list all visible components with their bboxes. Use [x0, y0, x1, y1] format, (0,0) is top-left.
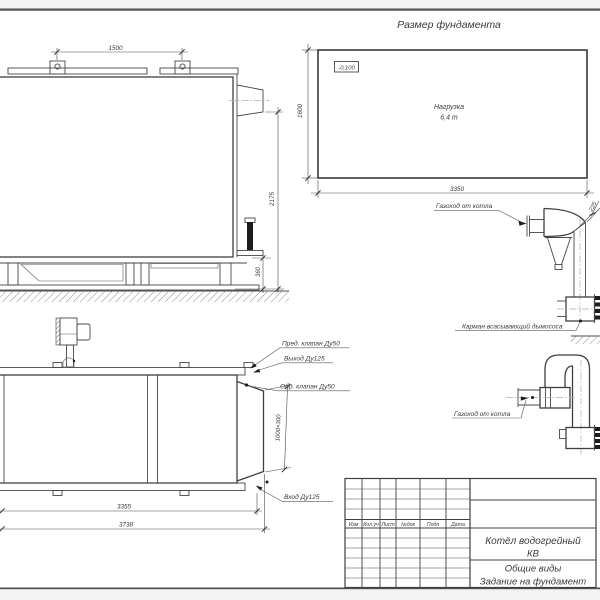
leader-arrow [253, 369, 260, 373]
foundation-plan: Размер фундамента -0,100 Нагрузка 6,4 т … [297, 19, 594, 198]
tb-col-ndok: №док [401, 522, 415, 528]
plan-length-dim: 3355 [117, 504, 132, 511]
foundation-width-dim: 3350 [450, 186, 465, 193]
tb-product-line2: КВ [527, 549, 540, 560]
tb-doc-line1: Общие виды [505, 564, 562, 575]
tb-col-izm: Изм [349, 522, 359, 528]
tb-col-data: Дата [450, 522, 465, 528]
lifting-lug-left [50, 61, 65, 74]
flue-upper-dim: 225 [588, 201, 599, 214]
flue-upper-label: Газоход от котла [436, 202, 493, 210]
flue-duct-upper: Газоход от котла 225 [434, 201, 600, 344]
drawing-sheet: Размер фундамента -0,100 Нагрузка 6,4 т … [0, 0, 600, 600]
safety-valve-assembly [56, 318, 90, 367]
label-inlet: Вход Ду125 [284, 493, 320, 501]
label-check-valve: Обр. клапан Ду50 [280, 383, 335, 391]
label-outlet: Выход Ду125 [284, 355, 325, 363]
boiler-plan-view: Пред. клапан Ду50 Выход Ду125 Обр. клапа… [0, 318, 350, 533]
tb-col-list: Лист [380, 522, 395, 528]
foundation-depth-dim: 1600 [297, 104, 304, 119]
plan-outlet-dim: 1000×300 [276, 414, 283, 442]
tb-col-koluch: Кол.уч [363, 522, 379, 528]
foundation-load-label: Нагрузка [434, 104, 464, 111]
lug-spacing-dim: 1500 [108, 45, 123, 52]
pocket-label: Карман всасывающий дымососа [462, 322, 563, 330]
lifting-lug-right [175, 61, 190, 74]
boiler-height-dim: 2175 [269, 192, 276, 208]
leader-arrow [519, 221, 527, 226]
tb-product-line1: Котёл водогрейный [485, 536, 581, 547]
tb-doc-line2: Задание на фундамент [480, 577, 586, 588]
foundation-title: Размер фундамента [397, 19, 501, 31]
tb-col-podp: Подп [427, 522, 440, 528]
title-block: Изм Кол.уч Лист №док Подп Дата Котёл вод… [345, 479, 596, 588]
foundation-elevation-mark: -0,100 [338, 65, 355, 71]
base-height-dim: 360 [256, 266, 262, 277]
drawing-canvas: Размер фундамента -0,100 Нагрузка 6,4 т … [0, 0, 600, 600]
flue-lower-label: Газоход от котла [454, 410, 511, 418]
boiler-side-view: 1500 2175 360 [0, 45, 289, 302]
foundation-load-value: 6,4 т [440, 115, 458, 122]
flue-duct-lower: Газоход от котла [452, 355, 600, 455]
leader-arrow [521, 397, 529, 401]
plan-overall-length-dim: 3738 [119, 522, 134, 529]
label-safety-valve: Пред. клапан Ду50 [282, 340, 340, 348]
